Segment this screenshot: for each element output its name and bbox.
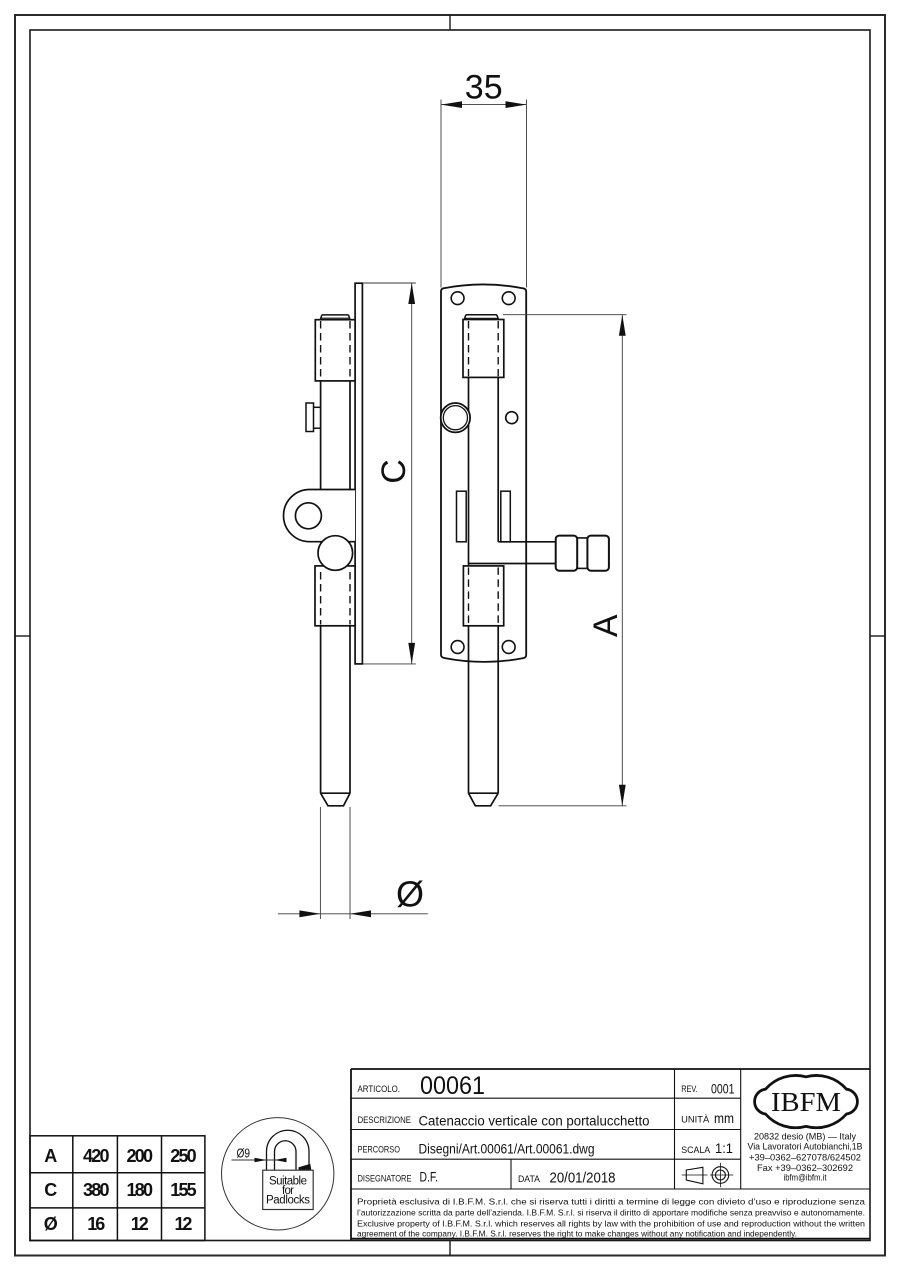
svg-text:250: 250 [170,1146,196,1166]
svg-text:ARTICOLO.: ARTICOLO. [358,1084,401,1094]
svg-text:DATA: DATA [518,1174,541,1184]
svg-text:Ø9: Ø9 [237,1146,251,1161]
svg-text:180: 180 [127,1180,153,1200]
svg-text:1:1: 1:1 [715,1140,733,1156]
svg-text:200: 200 [127,1146,153,1166]
svg-text:PERCORSO: PERCORSO [358,1145,401,1155]
svg-text:Padlocks: Padlocks [266,1195,310,1207]
svg-text:DISEGNATORE: DISEGNATORE [358,1174,412,1184]
svg-text:C: C [44,1180,57,1200]
svg-text:C: C [375,459,413,484]
svg-text:+39–0362–627078/624502: +39–0362–627078/624502 [749,1152,861,1163]
svg-text:0001: 0001 [711,1080,735,1096]
svg-text:Via Lavoratori Autobianchi,1B: Via Lavoratori Autobianchi,1B [748,1142,863,1153]
svg-text:Catenaccio verticale con porta: Catenaccio verticale con portalucchetto [419,1114,650,1129]
svg-text:ibfm@ibfm.it: ibfm@ibfm.it [784,1173,827,1184]
svg-text:380: 380 [83,1180,109,1200]
svg-text:155: 155 [170,1180,196,1200]
svg-text:00061: 00061 [420,1072,485,1100]
svg-text:16: 16 [87,1214,105,1234]
svg-text:SCALA: SCALA [681,1145,711,1155]
svg-text:Exclusive property of I.B.F.M.: Exclusive property of I.B.F.M. S.r.l. wh… [357,1218,865,1228]
svg-text:Ø: Ø [44,1214,58,1234]
svg-text:Disegni/Art.00061/Art.00061.dw: Disegni/Art.00061/Art.00061.dwg [419,1142,595,1157]
svg-text:REV.: REV. [681,1084,698,1094]
svg-text:20/01/2018: 20/01/2018 [550,1171,616,1187]
svg-text:12: 12 [174,1214,192,1234]
svg-text:l’autorizzazione scritta da pa: l’autorizzazione scritta da parte dell’a… [357,1208,865,1218]
svg-text:12: 12 [131,1214,149,1234]
svg-text:UNITÀ: UNITÀ [681,1115,710,1125]
svg-text:mm: mm [714,1110,734,1126]
svg-text:A: A [587,614,625,637]
svg-text:420: 420 [83,1146,109,1166]
svg-text:A: A [44,1146,57,1166]
svg-text:DESCRIZIONE: DESCRIZIONE [358,1115,412,1125]
svg-text:Ø: Ø [396,874,424,915]
svg-text:Proprietà esclusiva di I.B.F.M: Proprietà esclusiva di I.B.F.M. S.r.l. c… [357,1197,865,1207]
svg-text:agreement of the company. I.B.: agreement of the company. I.B.F.M. S.r.l… [357,1228,797,1238]
svg-text:D.F.: D.F. [420,1170,439,1185]
svg-text:IBFM: IBFM [771,1087,841,1117]
svg-text:35: 35 [465,69,503,107]
